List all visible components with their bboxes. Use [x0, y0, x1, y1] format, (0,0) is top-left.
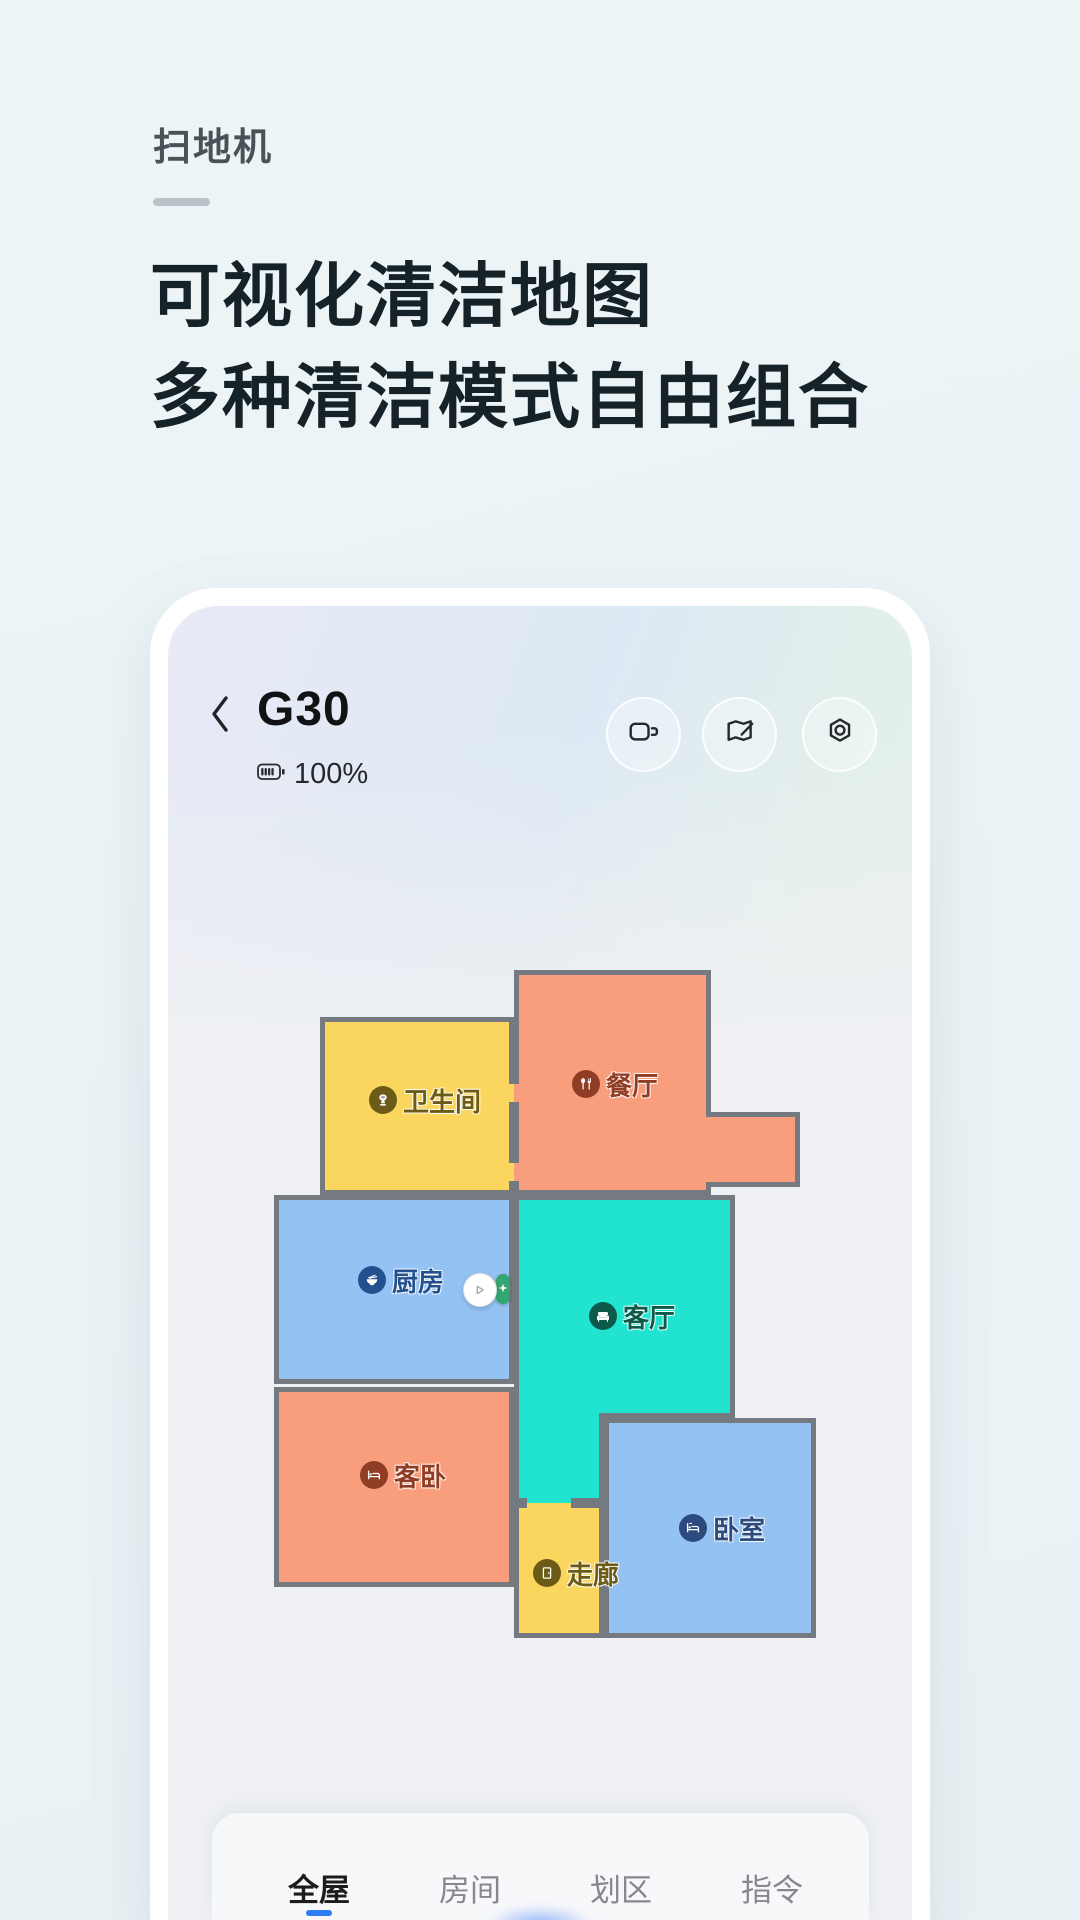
camera-view-button[interactable]	[606, 697, 681, 772]
room-label-guest-bedroom: 客卧	[360, 1461, 446, 1489]
tab-whole-house[interactable]: 全屋	[264, 1865, 374, 1910]
tab-zone[interactable]: 划区	[566, 1865, 676, 1910]
room-name: 客厅	[623, 1298, 675, 1335]
phone-screen: G30 100%	[168, 606, 912, 1920]
battery-level: 100%	[294, 758, 368, 791]
door-gap-living-corridor	[527, 1498, 571, 1508]
active-tab-indicator	[306, 1910, 332, 1916]
room-label-bedroom: 卧室	[679, 1514, 765, 1542]
door-icon	[533, 1559, 561, 1587]
room-name: 卫生间	[403, 1082, 481, 1119]
tab-command[interactable]: 指令	[717, 1865, 827, 1910]
tab-room[interactable]: 房间	[415, 1865, 525, 1910]
back-button[interactable]	[202, 694, 238, 738]
bottom-tab-sheet: 全屋 房间 划区 指令	[212, 1813, 869, 1920]
room-name: 厨房	[392, 1262, 444, 1299]
room-name: 餐厅	[606, 1066, 658, 1103]
room-dining-extension[interactable]	[711, 1112, 800, 1187]
device-name: G30	[257, 682, 351, 737]
page-title: 可视化清洁地图 多种清洁模式自由组合	[150, 246, 870, 448]
bed-icon	[360, 1461, 388, 1489]
battery-icon	[257, 763, 285, 786]
sofa-icon	[589, 1302, 617, 1330]
eyebrow-divider	[153, 198, 210, 206]
chevron-left-icon	[210, 695, 230, 738]
room-name: 走廊	[567, 1555, 619, 1592]
bed-lamp-icon	[679, 1514, 707, 1542]
phone-mockup: G30 100%	[150, 588, 930, 1920]
map-edit-icon	[723, 715, 757, 754]
map-edit-button[interactable]	[702, 697, 777, 772]
bowl-icon	[358, 1266, 386, 1294]
room-dining-patch	[704, 1117, 718, 1182]
room-name: 卧室	[713, 1510, 765, 1547]
robot-vacuum-icon[interactable]	[463, 1273, 497, 1307]
room-living-patch	[519, 1411, 599, 1425]
room-label-corridor: 走廊	[533, 1559, 619, 1587]
room-living-column[interactable]	[514, 1418, 604, 1503]
video-camera-icon	[627, 715, 661, 754]
settings-icon	[823, 715, 857, 754]
toilet-icon	[369, 1086, 397, 1114]
cutlery-icon	[572, 1070, 600, 1098]
door-gap-bathroom-dining	[509, 1084, 519, 1102]
settings-button[interactable]	[802, 697, 877, 772]
cleaning-map: 餐厅 卫生间	[273, 965, 816, 1640]
charge-spark-icon	[498, 1280, 508, 1298]
page-title-line1: 可视化清洁地图	[150, 246, 870, 347]
room-label-kitchen: 厨房	[358, 1266, 444, 1294]
battery-status: 100%	[257, 758, 368, 791]
page-title-line2: 多种清洁模式自由组合	[150, 347, 870, 448]
door-gap-bathroom-dining-2	[509, 1163, 519, 1181]
room-label-bathroom: 卫生间	[369, 1086, 481, 1114]
room-label-dining: 餐厅	[572, 1070, 658, 1098]
charging-dock[interactable]	[496, 1274, 510, 1304]
page-eyebrow: 扫地机	[153, 116, 273, 171]
room-name: 客卧	[394, 1457, 446, 1494]
room-label-living: 客厅	[589, 1302, 675, 1330]
